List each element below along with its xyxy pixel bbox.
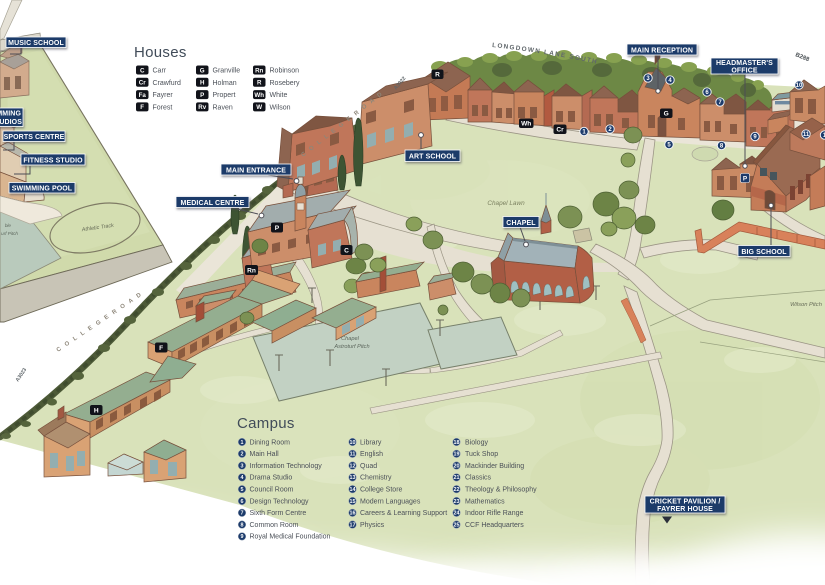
- svg-text:FAYRER HOUSE: FAYRER HOUSE: [657, 506, 713, 513]
- svg-text:Design Technology: Design Technology: [250, 498, 310, 505]
- svg-text:Indoor Rifle Range: Indoor Rifle Range: [465, 510, 523, 517]
- svg-text:16: 16: [350, 511, 356, 517]
- svg-text:Crawfurd: Crawfurd: [153, 80, 182, 87]
- svg-text:Raven: Raven: [213, 104, 233, 111]
- svg-text:Cr: Cr: [556, 127, 564, 134]
- svg-text:W: W: [256, 104, 262, 111]
- svg-text:Dining Room: Dining Room: [250, 439, 291, 446]
- svg-text:Fayrer: Fayrer: [153, 92, 174, 99]
- svg-text:Mathematics: Mathematics: [465, 498, 505, 505]
- svg-text:OFFICE: OFFICE: [731, 68, 757, 75]
- svg-text:P: P: [743, 176, 748, 183]
- svg-text:24: 24: [454, 511, 460, 517]
- svg-text:Holman: Holman: [213, 80, 237, 87]
- svg-text:English: English: [360, 451, 383, 458]
- svg-text:7: 7: [241, 511, 244, 517]
- svg-text:C: C: [140, 67, 145, 74]
- svg-text:Drama Studio: Drama Studio: [250, 475, 293, 482]
- svg-text:12: 12: [350, 463, 356, 469]
- svg-text:Astroturf Pitch: Astroturf Pitch: [333, 344, 369, 350]
- svg-text:CRICKET PAVILION /: CRICKET PAVILION /: [650, 498, 721, 505]
- svg-text:8: 8: [241, 522, 244, 528]
- svg-text:1: 1: [241, 440, 244, 446]
- svg-text:G: G: [664, 111, 669, 118]
- svg-text:Quad: Quad: [360, 463, 377, 470]
- svg-text:Royal Medical Foundation: Royal Medical Foundation: [250, 534, 331, 541]
- svg-text:Cr: Cr: [139, 80, 146, 87]
- svg-text:H: H: [94, 408, 99, 415]
- svg-text:13: 13: [350, 475, 356, 481]
- svg-text:14: 14: [350, 487, 356, 493]
- svg-text:25: 25: [454, 522, 460, 528]
- svg-text:SPORTS CENTRE: SPORTS CENTRE: [4, 134, 65, 141]
- svg-text:MAIN ENTRANCE: MAIN ENTRANCE: [226, 167, 286, 174]
- svg-text:CCF Headquarters: CCF Headquarters: [465, 522, 524, 529]
- svg-text:Classics: Classics: [465, 475, 492, 482]
- svg-text:Wilson Pitch: Wilson Pitch: [790, 302, 822, 308]
- svg-text:MUSIC SCHOOL: MUSIC SCHOOL: [8, 40, 64, 47]
- svg-text:10: 10: [350, 440, 356, 446]
- svg-text:White: White: [270, 92, 288, 99]
- svg-text:Campus: Campus: [237, 415, 295, 432]
- svg-text:Library: Library: [360, 439, 382, 446]
- svg-text:urf Pitch: urf Pitch: [1, 231, 18, 236]
- svg-text:College Store: College Store: [360, 487, 403, 494]
- svg-text:Fa: Fa: [139, 92, 147, 99]
- svg-text:21: 21: [454, 475, 460, 481]
- svg-text:Information Technology: Information Technology: [250, 463, 323, 470]
- svg-text:MAIN RECEPTION: MAIN RECEPTION: [631, 47, 693, 54]
- svg-text:Rn: Rn: [247, 268, 256, 275]
- svg-text:F: F: [159, 345, 163, 352]
- svg-text:H: H: [200, 80, 205, 87]
- svg-text:17: 17: [350, 522, 356, 528]
- svg-text:Chapel Lawn: Chapel Lawn: [487, 200, 525, 207]
- svg-text:P: P: [200, 92, 204, 99]
- svg-text:Biology: Biology: [465, 439, 488, 446]
- svg-text:3: 3: [241, 463, 244, 469]
- svg-text:Chemistry: Chemistry: [360, 475, 392, 482]
- svg-text:Rosebery: Rosebery: [270, 80, 300, 87]
- svg-text:Granville: Granville: [213, 68, 241, 75]
- svg-text:BIG SCHOOL: BIG SCHOOL: [741, 249, 787, 256]
- svg-text:Propert: Propert: [213, 92, 236, 99]
- svg-text:2: 2: [241, 452, 244, 458]
- svg-text:Modern Languages: Modern Languages: [360, 498, 421, 505]
- svg-text:Careers & Learning Support: Careers & Learning Support: [360, 510, 447, 517]
- svg-text:22: 22: [454, 487, 460, 493]
- svg-text:Wh: Wh: [254, 92, 264, 99]
- svg-text:11: 11: [803, 132, 810, 138]
- svg-text:Robinson: Robinson: [270, 68, 300, 75]
- svg-text:Wh: Wh: [521, 121, 531, 128]
- svg-text:SWIMMING POOL: SWIMMING POOL: [12, 186, 73, 193]
- svg-text:Mackinder Building: Mackinder Building: [465, 463, 524, 470]
- svg-text:6: 6: [241, 499, 244, 505]
- svg-text:Council Room: Council Room: [250, 487, 294, 494]
- svg-text:R: R: [435, 72, 440, 79]
- svg-text:F: F: [140, 104, 144, 111]
- svg-text:10: 10: [796, 83, 803, 89]
- svg-text:19: 19: [454, 452, 460, 458]
- svg-text:Carr: Carr: [153, 68, 167, 75]
- svg-text:Houses: Houses: [134, 44, 187, 61]
- svg-text:Forest: Forest: [153, 104, 173, 111]
- svg-text:Rv: Rv: [198, 104, 206, 111]
- svg-text:4: 4: [241, 475, 244, 481]
- svg-text:FITNESS STUDIO: FITNESS STUDIO: [23, 157, 83, 164]
- svg-text:P: P: [275, 225, 280, 232]
- svg-text:5: 5: [241, 487, 244, 493]
- svg-text:Chapel: Chapel: [341, 336, 359, 342]
- svg-text:23: 23: [454, 499, 460, 505]
- svg-text:CHAPEL: CHAPEL: [506, 220, 536, 227]
- svg-text:ble: ble: [5, 223, 12, 228]
- svg-text:SWIMMING: SWIMMING: [0, 111, 21, 118]
- svg-text:Rn: Rn: [255, 67, 263, 74]
- svg-text:20: 20: [454, 463, 460, 469]
- svg-text:G: G: [200, 67, 205, 74]
- svg-text:15: 15: [350, 499, 356, 505]
- svg-text:STUDIOS: STUDIOS: [0, 119, 22, 126]
- svg-text:Physics: Physics: [360, 522, 385, 529]
- svg-text:HEADMASTER'S: HEADMASTER'S: [716, 60, 773, 67]
- svg-text:C: C: [344, 248, 349, 255]
- svg-text:Sixth Form Centre: Sixth Form Centre: [250, 510, 307, 517]
- svg-text:Main Hall: Main Hall: [250, 451, 280, 458]
- svg-text:R: R: [257, 80, 262, 87]
- svg-text:9: 9: [241, 534, 244, 540]
- svg-text:18: 18: [454, 440, 460, 446]
- svg-text:MEDICAL CENTRE: MEDICAL CENTRE: [181, 200, 245, 207]
- svg-text:Common Room: Common Room: [250, 522, 299, 529]
- svg-text:Tuck Shop: Tuck Shop: [465, 451, 498, 458]
- svg-text:11: 11: [350, 452, 356, 458]
- svg-text:Wilson: Wilson: [270, 104, 291, 111]
- svg-text:ART SCHOOL: ART SCHOOL: [409, 154, 457, 161]
- svg-text:Theology & Philosophy: Theology & Philosophy: [465, 487, 537, 494]
